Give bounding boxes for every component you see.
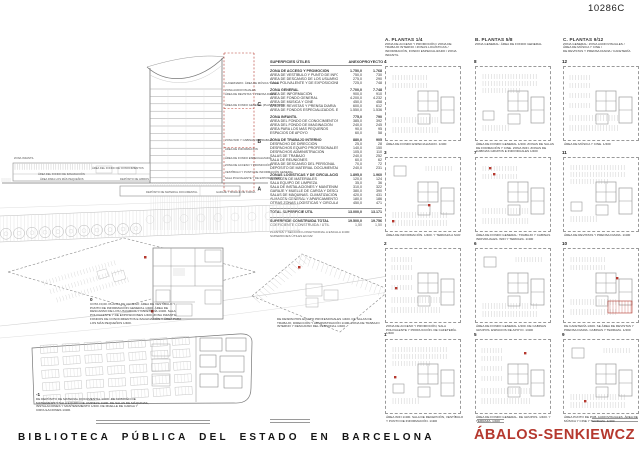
floor-plan-caption: ÁREA DE FONDO ESPECIALIZADO. 1/400: [386, 143, 464, 147]
floor-plan-number: 2: [384, 241, 387, 246]
floor-plan-9: 9ÁREA PUNTO DE PUB. AUDIOVISUALES. ÁREA …: [563, 339, 639, 414]
floor-plan-graphic: [386, 158, 460, 231]
floor-plan-caption: ÁREA DE FONDO GENERAL 1/400. DE CABINAS …: [476, 325, 554, 332]
areas-table-lbl: SALA POLIVALENTE Y DE EXPOSICIONES: [270, 81, 338, 85]
areas-table-row: SALA POLIVALENTE Y DE EXPOSICIONES725,07…: [270, 81, 382, 85]
floor-plan-number: 4: [384, 59, 387, 64]
floor-plan-caption: ÁREA DE MÚSICA Y CINE. 1/400: [564, 143, 640, 147]
drawing-label: ZONA WIFI Y CABINAS DE TRABAJO: [225, 138, 274, 142]
plan-column-header-b: B. PLANTAS 5/8ZONA GENERAL: ÁREA DE FOND…: [475, 38, 553, 46]
areas-table-vp: 58: [362, 131, 382, 135]
floor-plan-number: 11: [562, 150, 567, 155]
plan-column-desc: ZONA GENERAL: ZONA AUDIOVISUALES / ÁREA …: [563, 43, 640, 54]
drawing-label: ÁREA DE INFORMACIÓN: [225, 146, 258, 151]
areas-table-col-annex: ANEXO: [338, 60, 362, 64]
areas-table-vp: 231: [362, 166, 382, 170]
floor-plan-3: 3ÁREA DE INFORMACIÓN. 1/400. Y TERRAZA A…: [385, 157, 461, 232]
floor-plan-graphic: [386, 249, 460, 322]
areas-table-va: 1.550,0: [338, 108, 362, 112]
areas-table-row: DEPÓSITO DE MATERIAL DOCUMENTAL240,0231: [270, 166, 382, 170]
floor-plan-caption: ÁREA DE FONDO GENERAL 1/400. ZONAS DE SA…: [476, 143, 554, 154]
floor-plan-2: 2ZONA DE ACCESO Y PROMOCIÓN, SALA POLIVA…: [385, 248, 461, 323]
areas-table-va: 60,0: [338, 131, 362, 135]
floor-plan-11: 11ÁREA DE REVISTAS Y PRENSA DIARIA. 1/40…: [563, 157, 639, 232]
internal-plan-caption: DE DESPACHOS EQUIPO PROFESIONALES 1/400.…: [277, 318, 385, 329]
floor-plan-graphic: [476, 249, 550, 322]
basement-plan-caption: DE DEPÓSITO DE MATERIAL DOCUMENTAL 1/400…: [36, 398, 156, 413]
areas-table-lbl: ESPACIOS DE APOYO: [270, 131, 338, 135]
floor-plan-caption: ÁREA DE FONDO GENERAL. DE GRUPOS. 1/400.…: [476, 416, 554, 423]
areas-table-title: SUPERFICIES ÚTILES: [270, 60, 338, 64]
plan-column-desc: ZONA DE ACCESO Y PROMOCIÓN / ZONA DE TRA…: [385, 43, 463, 58]
floor-plan-number: 6: [474, 241, 477, 246]
floor-plan-graphic: [564, 340, 638, 413]
floor-plan-graphic: [476, 67, 550, 140]
floor-plan-graphic: [564, 249, 638, 322]
floor-plan-number: 9: [562, 332, 565, 337]
floor-plan-caption: DE CAFETERÍA 1/400. SE ÁREA DE REVISTAS …: [564, 325, 640, 332]
plan-column-header-c: C. PLANTAS 9/12ZONA GENERAL: ZONA AUDIOV…: [563, 38, 640, 54]
floor-plan-number: 10: [562, 241, 567, 246]
floor-plan-7: 7ÁREA DE FONDO GENERAL: TRABAJO Y CABINA…: [475, 157, 551, 232]
areas-table-row: ÁREA DE FONDOS ESPECIALIZADOS. ESPACIOS …: [270, 108, 382, 112]
floor-plan-graphic: [386, 67, 460, 140]
floor-plan-caption: ÁREA WIFI 1/400. SALA DE RECEPCIÓN, VEST…: [386, 416, 464, 423]
drawing-label: ÁREA DE FONDO ESPECIALIZADO: [225, 156, 272, 160]
floor-plan-8: 8ÁREA DE FONDO GENERAL 1/400. ZONAS DE S…: [475, 66, 551, 141]
floor-plan-caption: ÁREA PUNTO DE PUB. AUDIOVISUALES. ÁREA D…: [564, 416, 640, 423]
floor-plan-caption: ÁREA DE FONDO GENERAL: TRABAJO Y CABINAS…: [476, 234, 554, 241]
floor-plan-12: 12ÁREA DE MÚSICA Y CINE. 1/400: [563, 66, 639, 141]
floor-plan-caption: ÁREA DE REVISTAS Y PRENSA DIARIA. 1/400: [564, 234, 640, 238]
floor-plan-number: 3: [384, 150, 387, 155]
areas-table-header: SUPERFICIES ÚTILES ANEXO PROYECTO: [270, 60, 382, 66]
drawing-label: B: [258, 139, 262, 145]
drawing-label: A: [258, 187, 262, 193]
floor-plan-graphic: [386, 340, 460, 413]
drawing-label: ÁREA DEL FONDO DE CONOCIMIENTOS: [92, 166, 144, 170]
floor-plan-graphic: [564, 158, 638, 231]
architect-name: ÁBALOS-SENKIEWCZ: [474, 427, 635, 443]
drawing-label: GARAJE Y MUELLE DE CARGA: [216, 190, 256, 194]
competition-board: 10286C LUCERNARIO. ÁREA DE MÚSICA Y CINE…: [0, 0, 640, 451]
ground-plan-caption: COTA ±0,00. PLANTA DE ACCESO: ÁREA DE VE…: [90, 303, 186, 325]
areas-table-lbl: ÁREA DE FONDOS ESPECIALIZADOS. ESPACIOS …: [270, 108, 338, 112]
floor-plan-5: 5ÁREA DE FONDO GENERAL. DE GRUPOS. 1/400…: [475, 339, 551, 414]
floor-plan-10: 10DE CAFETERÍA 1/400. SE ÁREA DE REVISTA…: [563, 248, 639, 323]
floor-plan-graphic: [564, 67, 638, 140]
areas-table-va: 725,0: [338, 81, 362, 85]
floor-plan-caption: ZONA DE ACCESO Y PROMOCIÓN, SALA POLIVAL…: [386, 325, 464, 336]
floor-plan-number: 5: [474, 332, 477, 337]
floor-plan-number: 1: [384, 332, 387, 337]
areas-table-row: ESPACIOS DE APOYO60,058: [270, 131, 382, 135]
scale-bar: [96, 420, 210, 424]
areas-table-vp: 1.536: [362, 108, 382, 112]
floor-plan-graphic: [476, 158, 550, 231]
plan-column-header-a: A. PLANTAS 1/4ZONA DE ACCESO Y PROMOCIÓN…: [385, 38, 463, 58]
drawing-label: C: [258, 102, 262, 108]
plan-column-desc: ZONA GENERAL: ÁREA DE FONDO GENERAL: [475, 43, 553, 47]
floor-plan-4: 4ÁREA DE FONDO ESPECIALIZADO. 1/400: [385, 66, 461, 141]
scale-bar: [270, 419, 310, 423]
areas-table-lbl: DEPÓSITO DE MATERIAL DOCUMENTAL: [270, 166, 338, 170]
floor-plan-caption: ÁREA DE INFORMACIÓN. 1/400. Y TERRAZA A …: [386, 234, 464, 238]
floor-plan-6: 6ÁREA DE FONDO GENERAL 1/400. DE CABINAS…: [475, 248, 551, 323]
board-code: 10286C: [588, 3, 625, 14]
areas-table-vp: 748: [362, 81, 382, 85]
floor-plan-number: 8: [474, 59, 477, 64]
floor-plan-graphic: [476, 340, 550, 413]
floor-plan-number: 12: [562, 59, 567, 64]
drawing-label: ÁREA DE REVISTAS Y PRENSA DIARIA: [225, 92, 276, 96]
floor-plan-1: 1ÁREA WIFI 1/400. SALA DE RECEPCIÓN, VES…: [385, 339, 461, 414]
project-title: BIBLIOTECA PÚBLICA DEL ESTADO EN BARCELO…: [18, 432, 435, 443]
drawing-label: ZONA DE ACCESO Y PROMOCIÓN: [225, 162, 271, 167]
areas-table-va: 240,0: [338, 166, 362, 170]
drawing-label: ZONA INFANTIL: [14, 156, 34, 160]
areas-table-col-project: PROYECTO: [362, 60, 382, 64]
floor-plan-number: 7: [474, 150, 477, 155]
